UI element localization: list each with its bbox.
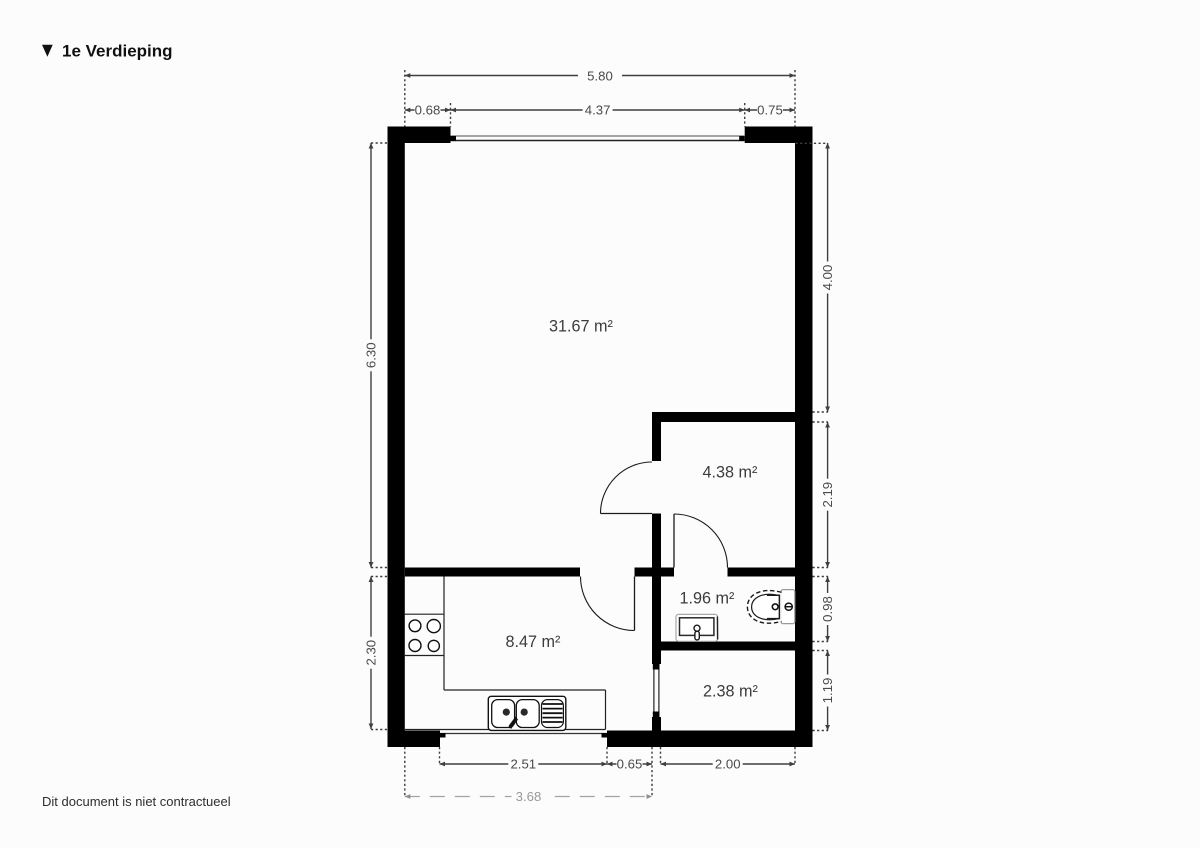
- svg-text:1.96 m²: 1.96 m²: [680, 590, 735, 608]
- svg-text:2.19: 2.19: [820, 482, 835, 508]
- svg-text:2.00: 2.00: [715, 757, 741, 772]
- svg-text:4.00: 4.00: [820, 265, 835, 291]
- svg-text:8.47 m²: 8.47 m²: [506, 633, 561, 651]
- svg-text:0.65: 0.65: [617, 757, 643, 772]
- svg-text:2.51: 2.51: [510, 757, 536, 772]
- svg-text:1.19: 1.19: [820, 678, 835, 704]
- svg-text:6.30: 6.30: [364, 342, 379, 368]
- svg-text:Dit document is niet contractu: Dit document is niet contractueel: [42, 794, 231, 809]
- svg-text:2.30: 2.30: [364, 640, 379, 666]
- svg-text:0.98: 0.98: [820, 596, 835, 622]
- svg-text:1e Verdieping: 1e Verdieping: [62, 42, 173, 61]
- svg-text:0.75: 0.75: [757, 103, 783, 118]
- svg-text:2.38 m²: 2.38 m²: [703, 682, 758, 700]
- svg-text:3.68: 3.68: [516, 789, 542, 804]
- svg-text:4.38 m²: 4.38 m²: [703, 464, 758, 482]
- svg-text:31.67 m²: 31.67 m²: [549, 317, 613, 335]
- svg-text:0.68: 0.68: [415, 103, 441, 118]
- svg-text:5.80: 5.80: [587, 68, 613, 83]
- svg-text:4.37: 4.37: [585, 103, 611, 118]
